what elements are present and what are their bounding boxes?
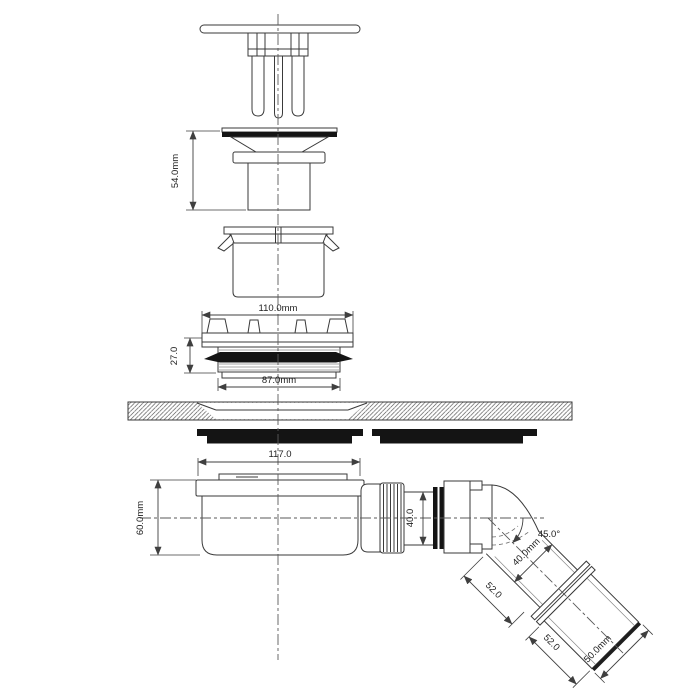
outlet-connection [361, 481, 492, 553]
lug-inner-left [248, 320, 260, 333]
technical-drawing-page: 54.0mm 110.0mm 27.0 87.0mm 117.0 60.0mm … [0, 0, 700, 700]
trap-flange [196, 480, 364, 496]
dim-40: 40.0 [405, 492, 423, 545]
dim-54mm: 54.0mm [170, 131, 246, 210]
waste-flange-assembly [222, 128, 337, 210]
lug-inner-right [295, 320, 307, 333]
trap-body [196, 474, 364, 555]
elbow-socket [444, 481, 471, 553]
flange-collar [233, 152, 325, 163]
dim-60mm: 60.0mm [135, 480, 200, 555]
bayonet-sleeve [218, 227, 339, 297]
elbow-collar [470, 485, 492, 549]
flange-plate [202, 333, 353, 347]
gasket-left [197, 429, 363, 444]
trap-bowl [202, 496, 358, 555]
sleeve-wing-left [218, 235, 234, 251]
dim-52-seg1: 52.0 [460, 557, 531, 628]
shower-tray [128, 402, 572, 420]
clip-leg-right [292, 56, 304, 116]
lug-outer-left [207, 319, 228, 333]
flange-disc-top [222, 128, 337, 132]
flange-cone [231, 137, 328, 152]
tray-recess [197, 403, 367, 420]
sleeve-wing-right [323, 235, 339, 251]
elbow-tab-top [470, 481, 482, 490]
clip-leg-left [252, 56, 264, 116]
dim-label-27: 27.0 [169, 347, 180, 366]
flange-seal-disc [222, 132, 337, 137]
dim-label-117: 117.0 [268, 449, 291, 460]
sleeve-body [233, 243, 324, 297]
sleeve-neck [230, 234, 327, 243]
elbow-outer-curve [492, 485, 539, 532]
cover-cap [200, 25, 360, 118]
dim-label-40mm: 40.0mm [511, 536, 543, 568]
cover-plate [200, 25, 360, 33]
dim-label-87mm: 87.0mm [262, 375, 296, 386]
dim-label-45deg: 45.0° [538, 529, 560, 540]
gasket-right [372, 429, 537, 444]
dim-label-40: 40.0 [405, 509, 416, 528]
dim-label-110mm: 110.0mm [259, 303, 298, 314]
sleeve-rim [224, 227, 333, 234]
flange-tube [248, 163, 310, 210]
clip-leg-center [275, 56, 283, 118]
dim-label-60mm: 60.0mm [135, 501, 146, 535]
dim-label-54mm: 54.0mm [170, 154, 181, 188]
threaded-flange [202, 319, 353, 378]
rubber-seal [204, 352, 353, 363]
dim-117: 117.0 [198, 449, 360, 476]
elbow-tab-bottom [470, 544, 482, 553]
lug-outer-right [327, 319, 348, 333]
shower-waste-trap-diagram: 54.0mm 110.0mm 27.0 87.0mm 117.0 60.0mm … [0, 0, 700, 700]
